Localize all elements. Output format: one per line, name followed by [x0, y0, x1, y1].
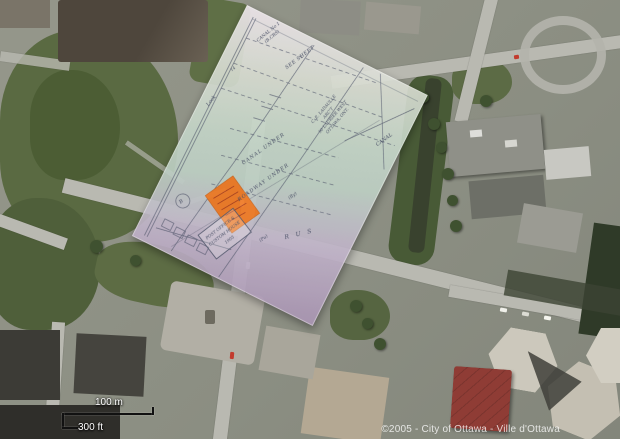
pu-mark: (Pu): [258, 232, 270, 243]
scale-bar-line: [62, 427, 78, 429]
roadway-under-label: ROADWAY UNDER: [236, 162, 291, 203]
basin-water: [578, 223, 620, 340]
copyright-text: ©2005 - City of Ottawa - Ville d'Ottawa: [381, 424, 560, 435]
building: [259, 326, 321, 380]
building: [73, 333, 146, 397]
vehicle-dot: [544, 315, 552, 320]
scale-bar-tick: [62, 413, 64, 427]
building: [0, 330, 60, 400]
scale-metric-label: 100 m: [95, 397, 123, 408]
tree: [480, 95, 492, 107]
tree: [428, 118, 440, 130]
monument: [205, 310, 215, 324]
building: [446, 114, 545, 177]
tree: [442, 168, 454, 180]
building: [301, 367, 390, 439]
scale-bar-line: [62, 413, 154, 415]
tree: [90, 240, 103, 253]
stamp-circle-letter: B: [177, 198, 185, 206]
building: [364, 2, 421, 35]
red-roof-building: [450, 366, 512, 432]
tree: [130, 255, 141, 266]
vehicle-dot: [230, 352, 235, 359]
tree: [374, 338, 386, 350]
dimension-number: 14: [229, 65, 236, 72]
canal-corner-label: CANAL: [375, 132, 394, 148]
canal-under-label: CANAL UNDER: [241, 132, 286, 167]
tree: [350, 300, 362, 312]
tree: [362, 318, 373, 329]
building: [517, 203, 583, 253]
scale-bar: 100 m 300 ft: [58, 394, 168, 436]
building: [58, 0, 208, 62]
vehicle-dot: [522, 311, 530, 316]
rooftop-unit: [505, 139, 518, 147]
vehicle-dot: [500, 307, 508, 312]
building: [544, 146, 591, 180]
tree: [450, 220, 462, 232]
interchange-loop: [520, 16, 606, 94]
scale-imperial-label: 300 ft: [78, 422, 103, 433]
tree: [436, 142, 447, 153]
lock-label: Lock: [205, 94, 218, 108]
tree: [447, 195, 458, 206]
rus-letters: R U S: [283, 227, 315, 241]
satellite-map-canvas[interactable]: POST OFFICE & CUSTOM HOUSE 1905 CANAL No…: [0, 0, 620, 439]
by-mark: (By): [287, 190, 299, 201]
rooftop-unit: [470, 129, 483, 137]
building: [0, 0, 50, 28]
vehicle-dot: [514, 55, 520, 60]
park-area: [30, 70, 120, 180]
scale-bar-tick: [152, 407, 154, 415]
building: [299, 0, 361, 36]
park-area: [330, 290, 390, 340]
see-sheet-label: SEE SHEET: [284, 45, 316, 71]
